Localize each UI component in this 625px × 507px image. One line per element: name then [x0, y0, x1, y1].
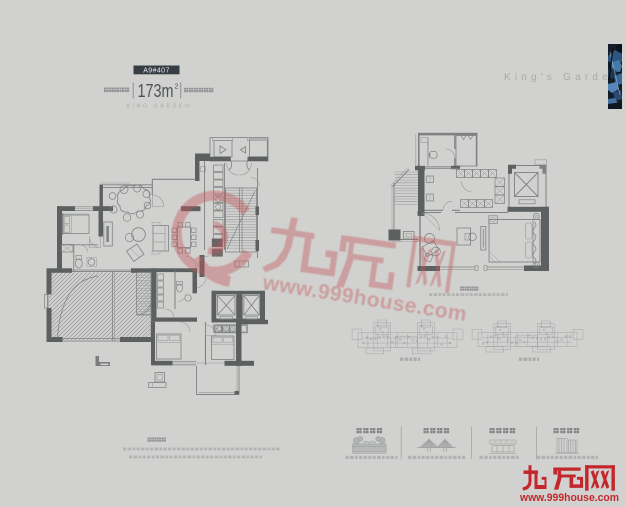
svg-text:173m: 173m — [138, 81, 174, 101]
svg-text:King's Garden: King's Garden — [504, 72, 622, 83]
svg-text:2: 2 — [175, 84, 179, 91]
svg-text:KING GARDEN: KING GARDEN — [127, 104, 192, 110]
svg-text:A9#407: A9#407 — [143, 68, 170, 75]
svg-text:www.999house.com: www.999house.com — [519, 492, 619, 504]
